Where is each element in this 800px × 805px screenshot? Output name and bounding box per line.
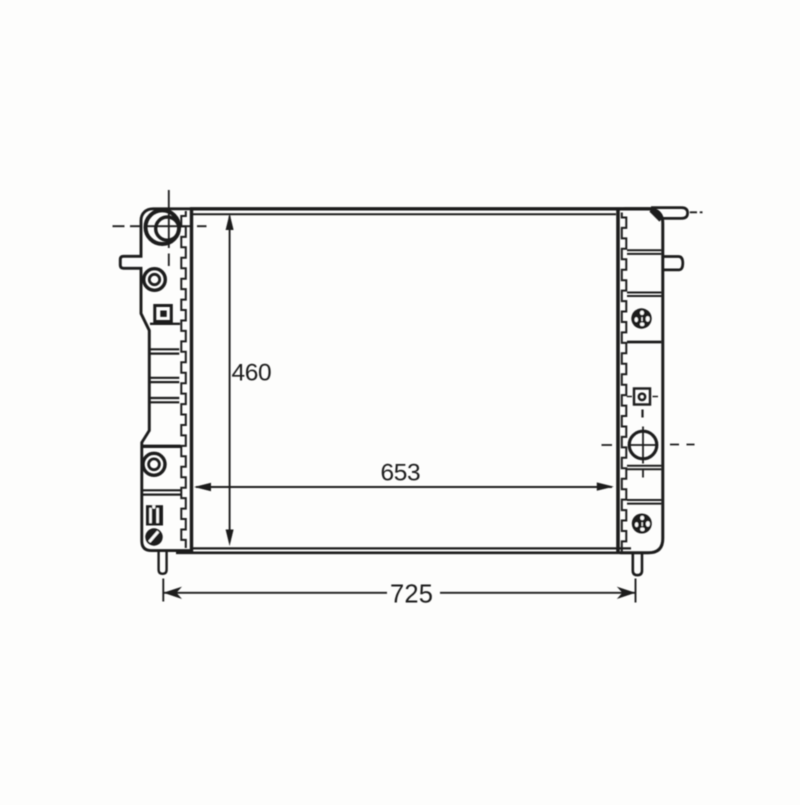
- svg-text:653: 653: [381, 460, 421, 487]
- svg-text:460: 460: [232, 360, 272, 387]
- svg-text:725: 725: [390, 581, 433, 609]
